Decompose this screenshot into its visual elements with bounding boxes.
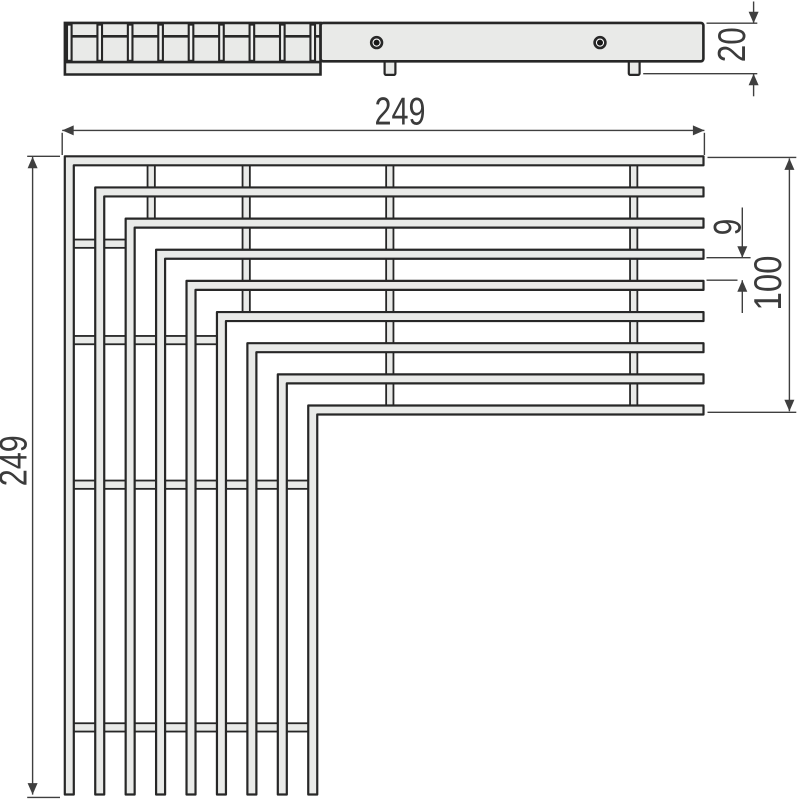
svg-text:249: 249 [0,435,35,486]
svg-text:9: 9 [707,219,750,236]
svg-text:249: 249 [375,90,426,133]
svg-text:20: 20 [711,27,754,62]
svg-text:100: 100 [747,256,790,311]
